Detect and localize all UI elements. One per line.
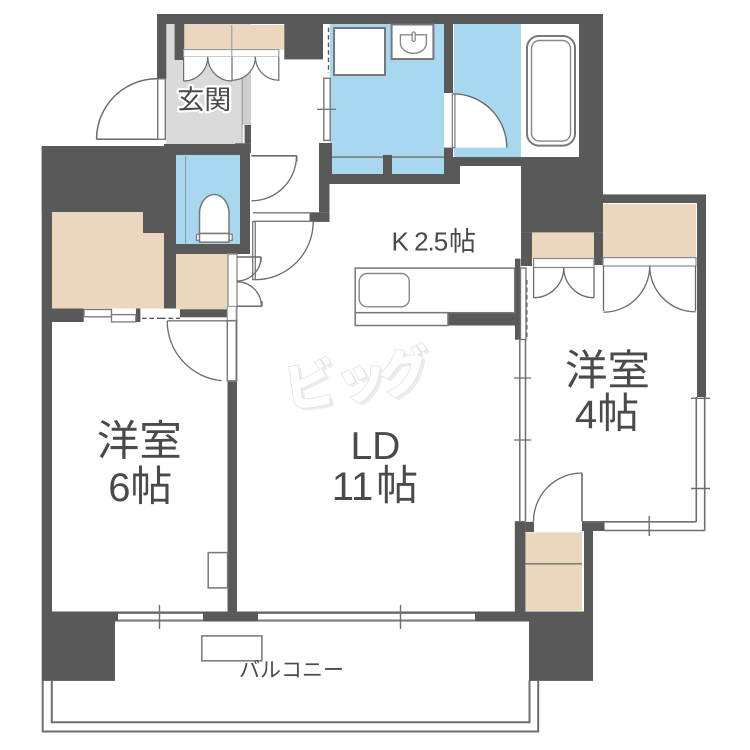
- svg-text:K 2.5: K 2.5: [392, 227, 448, 257]
- svg-text:6: 6: [108, 466, 130, 510]
- svg-text:11: 11: [332, 465, 374, 509]
- svg-text:LD: LD: [350, 425, 400, 468]
- svg-text:4: 4: [575, 393, 597, 437]
